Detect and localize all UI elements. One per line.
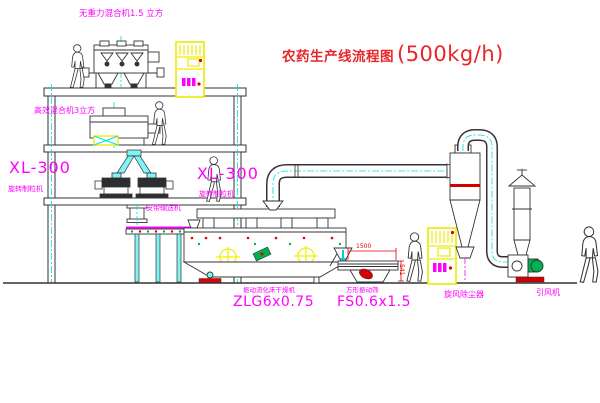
- control-cabinet-top: [176, 42, 204, 97]
- y-feed-pipe: [117, 150, 151, 173]
- efficient-mixer: [90, 102, 160, 150]
- label-granulator-left-name: 旋转制粒机: [8, 186, 43, 193]
- label-sieve-model: FS0.6x1.5: [337, 295, 411, 310]
- person-ground: [407, 233, 423, 282]
- dim-sieve-height: 541: [398, 264, 404, 275]
- label-dryer-name: 振动流化床干燥机: [243, 287, 295, 294]
- granulator-left: [95, 173, 132, 198]
- label-dryer-model: ZLG6x0.75: [233, 295, 314, 310]
- label-granulator-right-name: 旋转制粒机: [199, 191, 234, 198]
- induced-draft-fan: [508, 255, 544, 282]
- label-gravity-mixer: 无重力混合机1.5 立方: [79, 10, 163, 19]
- granulator-right: [136, 173, 173, 198]
- flow-diagram-canvas: 无重力混合机1.5 立方 农药生产线流程图 (500kg/h) 高效混合机3立方…: [0, 0, 600, 403]
- label-granulator-right-model: XL-300: [197, 166, 259, 183]
- label-cyclone: 旋风除尘器: [444, 291, 484, 299]
- title-capacity: (500kg/h): [397, 42, 504, 66]
- label-fan: 引风机: [536, 289, 560, 297]
- label-belt-conveyor: 皮带输送机: [146, 205, 181, 212]
- person-top-floor: [70, 45, 84, 88]
- exhaust-duct: [273, 164, 459, 207]
- control-cabinet-bottom: [428, 228, 456, 284]
- title-text: 农药生产线流程图: [282, 45, 394, 65]
- label-sieve-name: 方形振动筛: [346, 287, 379, 294]
- label-efficient-mixer: 高效混合机3立方: [34, 107, 95, 115]
- person-far-right: [580, 227, 598, 282]
- gravity-mixer: [82, 36, 164, 88]
- dim-sieve-length: 1500: [356, 244, 371, 250]
- vibrating-sieve: [334, 248, 404, 282]
- label-granulator-left-model: XL-300: [9, 160, 71, 177]
- discharge-pipe: [127, 205, 147, 227]
- fluid-bed-dryer: [184, 201, 346, 283]
- diagram-title: 农药生产线流程图 (500kg/h): [282, 42, 504, 66]
- person-second-floor: [152, 102, 166, 145]
